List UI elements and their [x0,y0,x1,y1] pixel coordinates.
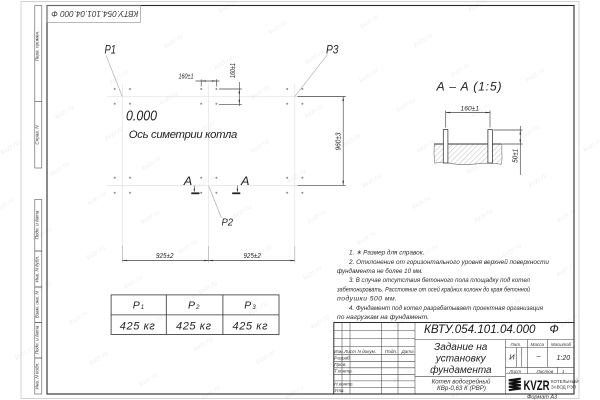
svg-text:Подп. и дата: Подп. и дата [35,325,40,354]
svg-text:Подп. и дата: Подп. и дата [35,210,40,239]
svg-text:Лист: Лист [508,369,521,374]
svg-text:1:20: 1:20 [557,355,571,362]
svg-text:Изм.Лист: Изм.Лист [334,349,356,354]
svg-text:P1: P1 [105,43,117,57]
svg-text:925±2: 925±2 [156,253,174,260]
svg-text:1: 1 [141,305,144,311]
svg-text:A: A [183,174,193,188]
svg-text:0.000: 0.000 [126,108,157,124]
svg-text:Ось симетрии котла: Ось симетрии котла [129,129,238,141]
svg-text:KVZR: KVZR [524,377,550,393]
svg-text:A: A [240,174,250,188]
svg-text:Задание на: Задание на [434,342,488,353]
svg-text:КВр-0,63 К (РВР): КВр-0,63 К (РВР) [437,385,486,392]
svg-text:Справ. N: Справ. N [35,125,40,145]
svg-text:Т.контр.: Т.контр. [334,369,353,374]
svg-text:P: P [244,299,251,311]
svg-text:КВТУ.054.101.04.000 Ф: КВТУ.054.101.04.000 Ф [51,9,138,19]
svg-text:925±2: 925±2 [243,253,261,260]
svg-text:Ф: Ф [550,323,559,336]
svg-text:1. ∗ Размер для справок.: 1. ∗ Размер для справок. [349,249,425,257]
svg-text:P2: P2 [222,217,234,229]
svg-text:Подп.: Подп. [385,349,397,354]
svg-text:2. Отклонение от горизонтально: 2. Отклонение от горизонтального уровня … [348,258,549,266]
svg-text:N докум.: N докум. [358,349,377,354]
svg-text:425 кг: 425 кг [120,321,156,333]
svg-text:50±1: 50±1 [512,149,519,163]
svg-text:КОТЕЛЬНЫЙ: КОТЕЛЬНЫЙ [551,379,579,384]
svg-text:960±3: 960±3 [336,132,343,150]
svg-text:160±1: 160±1 [230,63,237,78]
svg-text:1: 1 [562,369,565,374]
svg-text:Утв.: Утв. [334,388,344,393]
svg-text:Инв. N дубл.: Инв. N дубл. [35,256,40,283]
svg-text:по нагрузкам на фундамент.: по нагрузкам на фундамент. [337,313,429,321]
svg-text:Лит.: Лит. [510,342,522,347]
svg-text:2: 2 [195,305,200,311]
svg-text:Разраб.: Разраб. [334,356,351,361]
svg-text:Н.контр.: Н.контр. [334,382,353,387]
svg-text:Формат А3: Формат А3 [527,394,558,400]
svg-text:Взам. инв. N: Взам. инв. N [35,291,40,318]
svg-text:P: P [188,299,195,311]
svg-text:Листов: Листов [536,369,554,374]
svg-text:КВТУ.054.101.04.000: КВТУ.054.101.04.000 [424,323,536,336]
svg-text:забетонировать. Расстояние от: забетонировать. Расстояние от осей крайн… [336,285,530,293]
svg-text:подушки 500 мм.: подушки 500 мм. [337,295,397,303]
svg-text:160±1: 160±1 [179,73,194,80]
svg-text:425 кг: 425 кг [233,321,269,333]
svg-text:4. Фундамент под котел разраба: 4. Фундамент под котел разрабатывает про… [349,304,543,312]
svg-text:3. В случае отсутствия бетонно: 3. В случае отсутствия бетонного пола пл… [349,276,530,284]
svg-text:–: – [536,352,542,361]
svg-text:фундамента не более 10 мм.: фундамента не более 10 мм. [337,267,423,275]
svg-text:160±1: 160±1 [461,106,480,113]
svg-text:P3: P3 [326,43,339,57]
svg-text:Масса: Масса [531,342,545,347]
svg-text:425 кг: 425 кг [176,321,212,333]
svg-text:И: И [509,353,515,362]
svg-text:ЗАВОД РЭП: ЗАВОД РЭП [551,385,576,390]
svg-text:P: P [133,299,140,311]
svg-text:установку: установку [435,354,487,365]
svg-text:A – A (1:5): A – A (1:5) [436,80,502,94]
svg-text:фундамента: фундамента [430,364,492,376]
svg-text:Масштаб: Масштаб [551,342,571,347]
svg-text:Перв. примен.: Перв. примен. [35,31,40,62]
svg-text:Дата: Дата [401,349,415,354]
svg-text:Пров.: Пров. [334,362,346,367]
svg-text:Инв. N подл.: Инв. N подл. [35,363,40,390]
